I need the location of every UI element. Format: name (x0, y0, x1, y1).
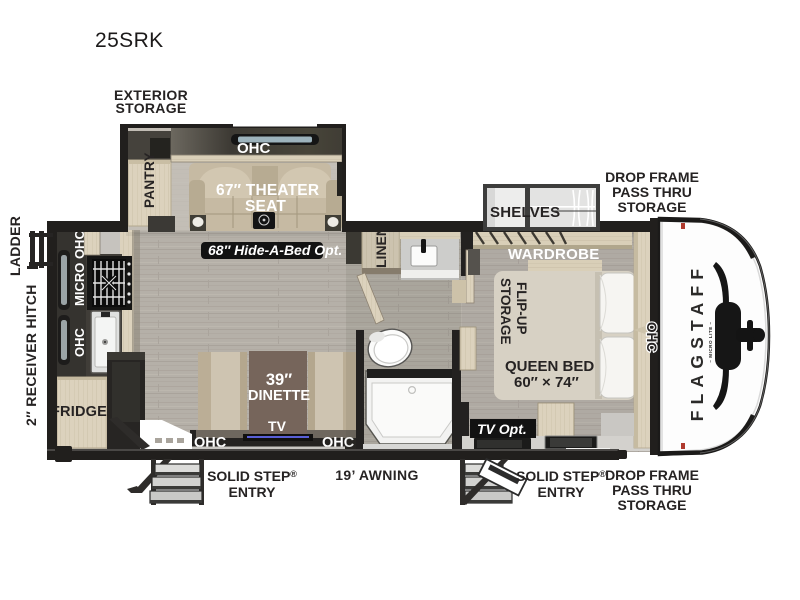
svg-text:SOLID STEP®: SOLID STEP® (207, 468, 297, 484)
svg-text:60″ × 74″: 60″ × 74″ (514, 374, 579, 391)
svg-text:TV: TV (268, 418, 287, 434)
svg-text:SOLID STEP®: SOLID STEP® (516, 468, 606, 484)
svg-text:DINETTE: DINETTE (248, 388, 310, 404)
svg-text:– MICRO LITE –: – MICRO LITE – (708, 321, 713, 362)
svg-text:QUEEN BED: QUEEN BED (505, 358, 594, 375)
svg-text:OHC: OHC (644, 322, 659, 352)
svg-text:LADDER: LADDER (7, 216, 23, 276)
svg-text:STORAGE: STORAGE (115, 100, 186, 116)
svg-text:FLIP-UP: FLIP-UP (514, 282, 529, 335)
svg-text:MICRO OHC: MICRO OHC (72, 230, 87, 306)
svg-text:DROP FRAME: DROP FRAME (605, 467, 699, 483)
svg-text:PASS THRU: PASS THRU (612, 184, 692, 200)
svg-text:2″ RECEIVER HITCH: 2″ RECEIVER HITCH (23, 284, 39, 426)
svg-text:STORAGE: STORAGE (618, 199, 687, 215)
svg-text:PANTRY: PANTRY (142, 152, 157, 208)
svg-text:DROP FRAME: DROP FRAME (605, 169, 699, 185)
svg-text:67″ THEATER: 67″ THEATER (216, 182, 319, 199)
svg-text:OHC: OHC (72, 328, 87, 358)
svg-text:SEAT: SEAT (245, 198, 286, 215)
svg-text:STORAGE: STORAGE (498, 278, 513, 345)
svg-text:STORAGE: STORAGE (618, 497, 687, 513)
svg-text:SHELVES: SHELVES (490, 204, 560, 221)
svg-text:FLAGSTAFF: FLAGSTAFF (687, 263, 707, 422)
svg-text:ENTRY: ENTRY (229, 484, 277, 500)
svg-text:OHC: OHC (237, 140, 271, 157)
svg-text:TV Opt.: TV Opt. (477, 421, 527, 437)
svg-text:39″: 39″ (266, 371, 292, 389)
svg-text:25SRK: 25SRK (95, 29, 164, 52)
svg-text:PASS THRU: PASS THRU (612, 482, 692, 498)
svg-text:FRIDGE: FRIDGE (51, 404, 107, 420)
svg-text:68″ Hide-A-Bed Opt.: 68″ Hide-A-Bed Opt. (208, 242, 342, 258)
svg-text:19’ AWNING: 19’ AWNING (335, 467, 419, 483)
svg-text:ENTRY: ENTRY (538, 484, 586, 500)
